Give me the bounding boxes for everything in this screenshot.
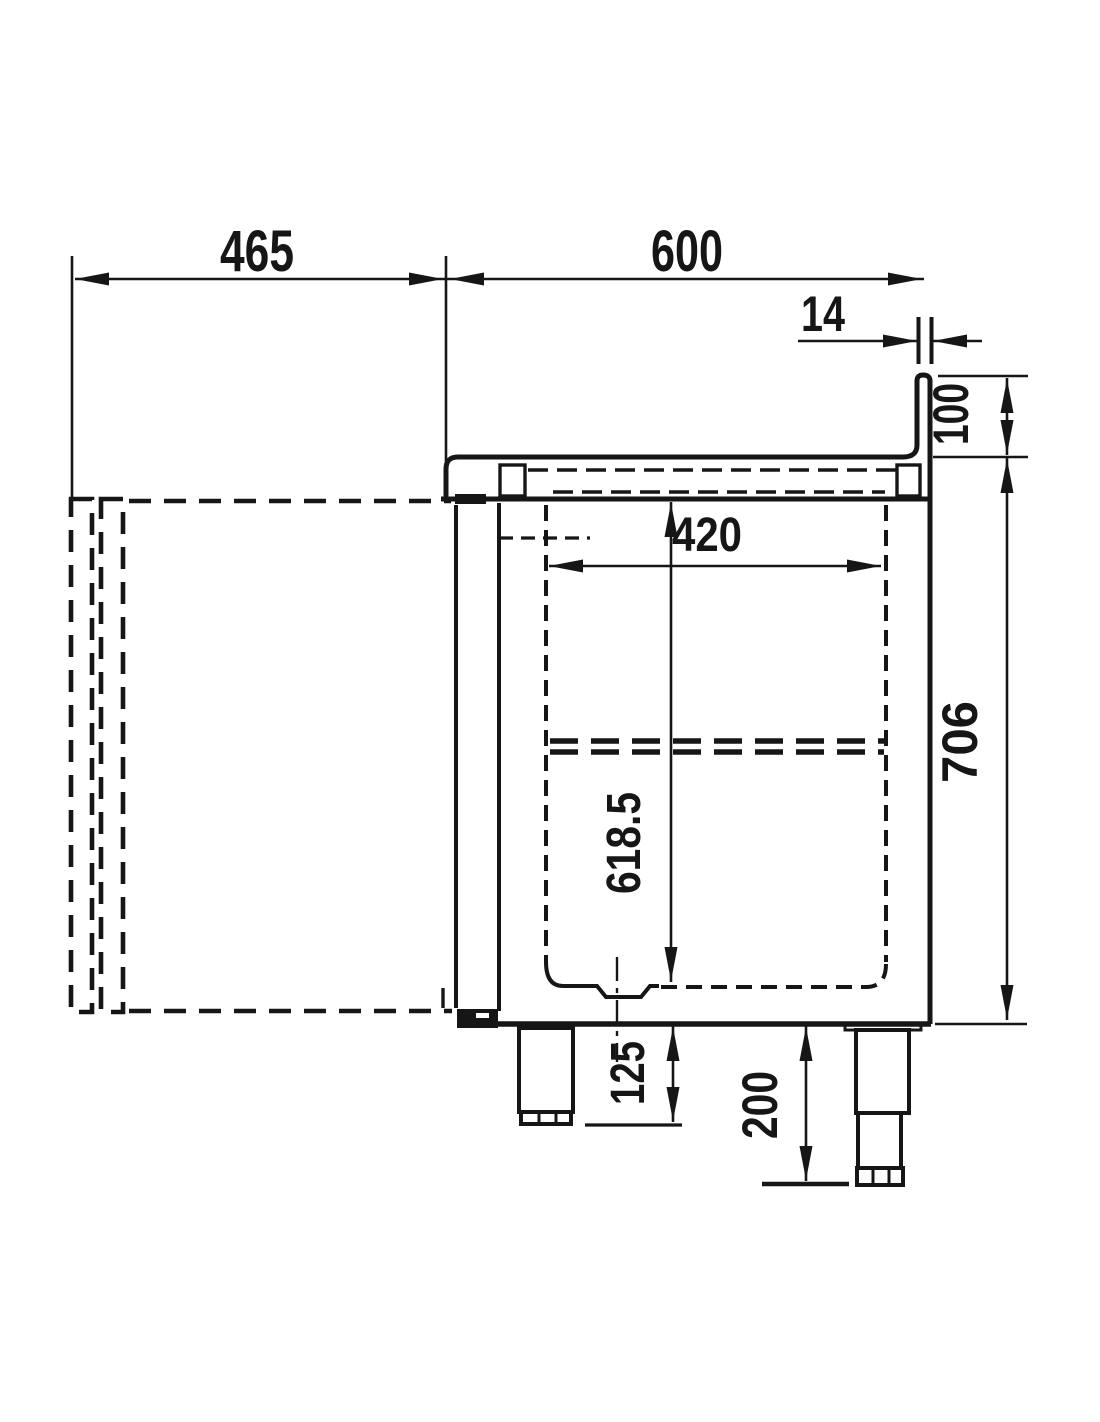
arrow-100-top [1001, 379, 1014, 413]
inner-liner [546, 505, 886, 1062]
arrow-125-top [667, 1027, 680, 1061]
liner-bottom-hidden [661, 964, 886, 987]
arrow-14-left [883, 335, 917, 348]
dim-label-600: 600 [651, 219, 723, 284]
front-top-rail-section [500, 465, 525, 496]
arrow-14-right [933, 335, 967, 348]
dim-label-706: 706 [932, 701, 988, 783]
worktop-and-upstand-outline [446, 375, 930, 1024]
cabinet-body [441, 375, 931, 1024]
top-hinge-block [455, 494, 486, 504]
arrow-125-bottom [667, 1087, 680, 1121]
dim-label-618-5: 618.5 [598, 792, 651, 894]
door-panel-outer-strip [71, 499, 92, 1012]
rear-leg-foot [857, 1168, 903, 1185]
door-panel-inner-strip [101, 499, 123, 1012]
door-open-phantom [71, 499, 452, 1012]
dimension-arrowheads [75, 273, 1014, 1181]
bottom-hinge-block [457, 1009, 498, 1028]
rear-leg-extension [858, 1113, 901, 1168]
arrow-618-5-bottom [665, 947, 678, 981]
arrow-706-top [1001, 459, 1014, 493]
legs [519, 1024, 921, 1185]
arrow-200-bottom [800, 1146, 813, 1180]
arrow-420-right [847, 560, 881, 573]
bottom-hinge-slot [476, 1013, 489, 1018]
arrow-100-bottom [1001, 420, 1014, 454]
arrow-200-top [800, 1027, 813, 1061]
technical-drawing-page: 465 600 14 420 100 706 618.5 125 200 [0, 0, 1100, 1422]
arrow-465-left [75, 273, 109, 286]
rear-top-rail-section [897, 465, 920, 496]
dim-label-420: 420 [672, 509, 742, 562]
dimension-lines [75, 279, 1007, 1181]
technical-drawing: 465 600 14 420 100 706 618.5 125 200 [0, 0, 1100, 1422]
arrow-420-left [549, 560, 583, 573]
arrow-600-left [450, 273, 484, 286]
arrow-706-bottom [1001, 985, 1014, 1019]
dim-label-14: 14 [801, 286, 845, 342]
dim-label-465: 465 [220, 219, 294, 284]
dim-label-125: 125 [602, 1041, 655, 1105]
arrow-465-right [409, 273, 443, 286]
front-leg-body [519, 1028, 573, 1112]
front-leg-foot [521, 1112, 571, 1124]
hinges [455, 494, 498, 1028]
rear-leg-upper [856, 1030, 909, 1113]
dim-label-200: 200 [732, 1071, 788, 1139]
dimension-labels: 465 600 14 420 100 706 618.5 125 200 [220, 219, 988, 1139]
liner-bottom-with-drain-dip [546, 962, 659, 997]
arrow-600-right [888, 273, 922, 286]
